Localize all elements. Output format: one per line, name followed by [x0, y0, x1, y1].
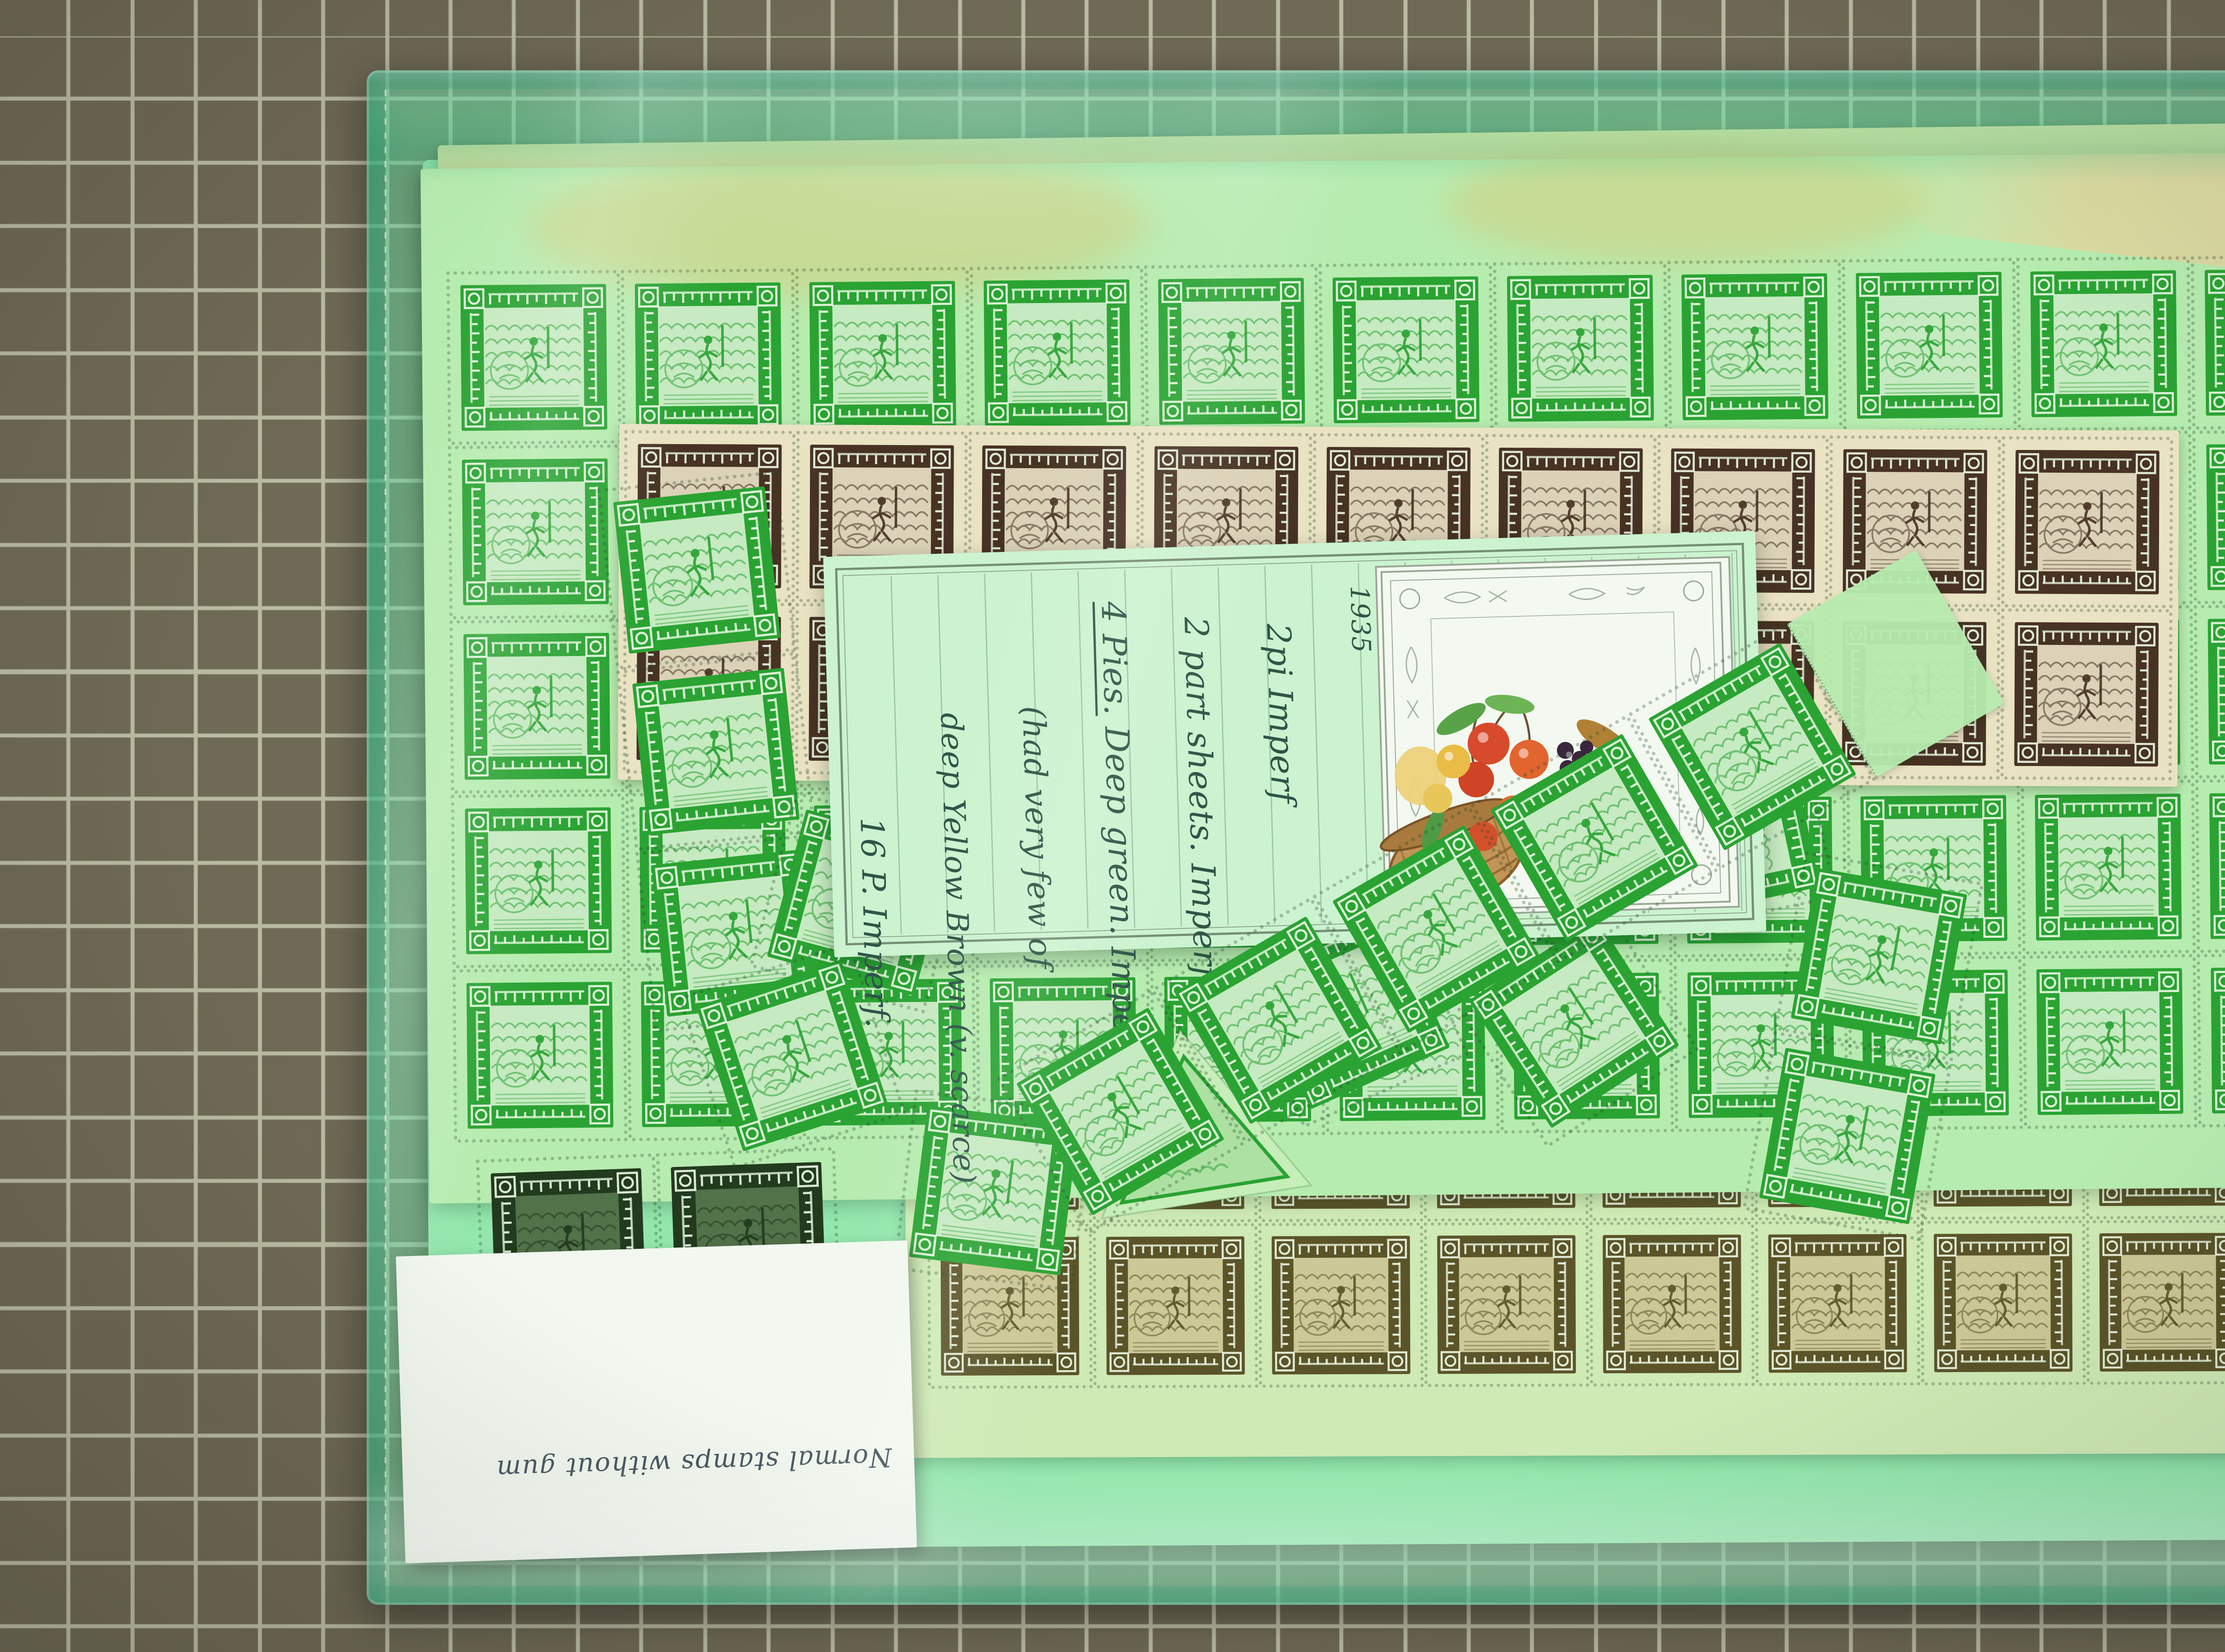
green-stamp [2193, 603, 2225, 779]
stamp-artwork [1756, 1223, 1918, 1385]
green-stamp [620, 268, 796, 444]
green-stamp [2016, 256, 2192, 432]
stamp-artwork [453, 795, 624, 967]
green-stamp [2022, 954, 2197, 1130]
green-stamp [616, 651, 817, 852]
green-stamp [1667, 259, 1843, 434]
stamp-artwork [2003, 438, 2172, 607]
stamp-artwork [2197, 780, 2225, 952]
green-stamp [2192, 429, 2225, 604]
stamp-artwork [2024, 956, 2196, 1127]
brown-stamp [2001, 436, 2174, 609]
stamp-artwork [449, 446, 621, 618]
stamp-artwork [448, 271, 620, 443]
stamp-artwork [971, 267, 1143, 439]
green-stamp [1742, 1030, 1953, 1242]
green-stamp [2190, 254, 2225, 430]
stamp-artwork [797, 268, 969, 440]
note-card-line: 16 P. Imperf. [824, 580, 916, 939]
olive-stamp [1424, 1222, 1590, 1388]
stamp-artwork [2018, 258, 2190, 429]
green-stamp [1493, 260, 1668, 436]
stamp-artwork [1495, 263, 1667, 434]
stamp-artwork [2087, 1221, 2225, 1383]
stamp-artwork [2195, 605, 2225, 777]
stamp-artwork [2002, 610, 2171, 779]
note-card-handwriting: 19352pi Imperf2 part sheets. Imperf.4 Pi… [866, 567, 1410, 937]
stamp-artwork [1320, 264, 1492, 436]
white-label: Normal stamps without gum [396, 1240, 917, 1563]
olive-stamp [2086, 1219, 2225, 1385]
stamp-artwork [1425, 1223, 1587, 1385]
green-stamp [969, 265, 1145, 441]
olive-stamp [1589, 1221, 1755, 1387]
stamp-artwork [1669, 261, 1841, 433]
note-card-line: 2 part sheets. Imperf. [1153, 571, 1245, 930]
stamp-artwork [1146, 266, 1318, 437]
brown-stamp [2000, 608, 2173, 781]
olive-stamp [1755, 1220, 1921, 1386]
green-stamp [795, 267, 971, 442]
green-stamp [1841, 257, 2017, 433]
stamp-artwork [454, 969, 626, 1141]
stamp-artwork [1094, 1225, 1256, 1387]
olive-stamp [1092, 1223, 1258, 1389]
olive-stamp [1258, 1222, 1424, 1388]
stamp-artwork [2194, 431, 2225, 603]
stamp-artwork [2193, 256, 2225, 428]
label-handwriting: Normal stamps without gum [491, 1441, 892, 1486]
green-stamp [597, 470, 797, 671]
green-stamp [1144, 263, 1319, 439]
green-stamp [2196, 952, 2225, 1128]
stamp-artwork [599, 472, 795, 668]
note-card-line: 4 Pies. Deep green. Imperf. [1071, 574, 1163, 932]
stamp-artwork [2198, 954, 2225, 1126]
note-card-line: deep Yellow Brown (v. scarce) [906, 578, 998, 936]
green-stamp [447, 444, 623, 619]
stamp-artwork [1844, 259, 2015, 431]
green-stamp [452, 967, 628, 1143]
note-card-line: 2pi Imperf [1235, 569, 1327, 927]
green-stamp [2195, 777, 2225, 953]
stamp-artwork [1591, 1223, 1753, 1385]
stamp-artwork [618, 654, 814, 850]
stamp-artwork [451, 620, 623, 792]
green-stamp [1318, 262, 1494, 437]
stamp-artwork [623, 270, 794, 442]
green-stamp [449, 618, 625, 794]
stamp-artwork [1744, 1033, 1950, 1239]
stamp-artwork [1260, 1224, 1422, 1386]
note-card-line: (had very few of [988, 576, 1080, 934]
olive-stamp [1920, 1220, 2086, 1386]
green-stamp [446, 269, 622, 445]
stamp-artwork [2023, 781, 2194, 953]
stamp-artwork [1922, 1222, 2084, 1384]
green-stamp [450, 793, 626, 968]
stamp-artwork [1776, 853, 1982, 1059]
photo-stamp-collection: 19352pi Imperf2 part sheets. Imperf.4 Pi… [0, 0, 2225, 1652]
green-stamp [2020, 779, 2196, 955]
underlined-words: 4 Pies. [1094, 601, 1135, 716]
green-stamp [1773, 850, 1985, 1062]
